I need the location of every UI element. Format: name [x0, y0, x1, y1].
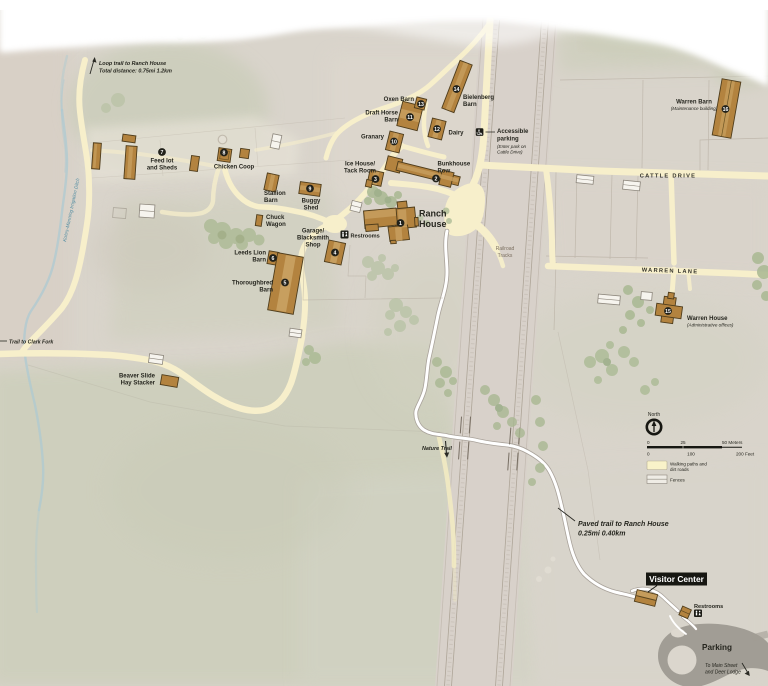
svg-text:Trail to Clark Fork: Trail to Clark Fork — [9, 340, 54, 346]
svg-text:Chicken Coop: Chicken Coop — [214, 165, 255, 171]
svg-text:Granary: Granary — [361, 135, 385, 141]
svg-text:(Enter park on: (Enter park on — [497, 144, 527, 149]
svg-text:and Sheds: and Sheds — [147, 166, 178, 172]
svg-text:(Maintenance building): (Maintenance building) — [671, 106, 718, 111]
svg-text:Row: Row — [438, 169, 451, 175]
svg-text:Nature Trail: Nature Trail — [422, 446, 452, 452]
svg-text:4: 4 — [334, 251, 337, 257]
svg-text:Wagon: Wagon — [266, 222, 286, 228]
svg-text:25: 25 — [680, 440, 686, 445]
svg-text:Barn: Barn — [259, 288, 273, 294]
svg-text:5: 5 — [284, 281, 287, 287]
svg-text:1: 1 — [399, 221, 402, 227]
svg-text:Tack Room: Tack Room — [344, 169, 376, 175]
svg-text:Chuck: Chuck — [266, 215, 285, 221]
svg-text:6: 6 — [272, 256, 275, 262]
svg-text:Ice House/: Ice House/ — [345, 162, 375, 168]
svg-text:Feed lot: Feed lot — [150, 159, 173, 165]
svg-text:dirt roads: dirt roads — [670, 467, 690, 472]
svg-text:Shed: Shed — [304, 206, 319, 212]
svg-text:50 Meters: 50 Meters — [722, 440, 743, 445]
svg-text:Warren House: Warren House — [687, 316, 728, 322]
svg-text:Parking: Parking — [702, 643, 732, 652]
svg-text:Paved trail to Ranch House: Paved trail to Ranch House — [578, 521, 669, 528]
svg-text:12: 12 — [434, 127, 440, 133]
svg-text:Leeds Lion: Leeds Lion — [234, 251, 266, 257]
svg-text:7: 7 — [161, 150, 164, 156]
svg-text:Garage/: Garage/ — [302, 229, 325, 235]
svg-text:Warren Barn: Warren Barn — [676, 100, 712, 106]
svg-text:16: 16 — [723, 107, 729, 113]
svg-text:200 Feet: 200 Feet — [736, 452, 755, 457]
svg-text:Accessible: Accessible — [497, 129, 529, 135]
svg-text:Railroad: Railroad — [496, 246, 515, 252]
svg-text:0.25mi 0.40km: 0.25mi 0.40km — [578, 531, 625, 538]
svg-text:(Administrative offices): (Administrative offices) — [687, 323, 734, 328]
svg-text:and Deer Lodge: and Deer Lodge — [705, 670, 741, 676]
svg-text:2: 2 — [435, 177, 438, 183]
svg-text:Stallion: Stallion — [264, 191, 286, 197]
svg-text:11: 11 — [407, 115, 413, 121]
svg-text:14: 14 — [454, 87, 460, 93]
svg-text:Total distance: 0.75mi 1.2km: Total distance: 0.75mi 1.2km — [99, 69, 172, 75]
svg-text:Barn: Barn — [252, 258, 266, 264]
svg-text:Visitor Center: Visitor Center — [649, 574, 705, 584]
svg-text:Shop: Shop — [306, 243, 321, 249]
svg-text:Blacksmith: Blacksmith — [297, 236, 329, 242]
svg-text:Hay Stacker: Hay Stacker — [121, 381, 156, 387]
svg-text:Barn: Barn — [384, 118, 398, 124]
svg-text:Barn: Barn — [264, 198, 278, 204]
svg-text:15: 15 — [665, 309, 671, 315]
svg-text:Walking paths and: Walking paths and — [670, 462, 707, 467]
svg-text:10: 10 — [391, 140, 397, 146]
svg-text:Bunkhouse: Bunkhouse — [438, 162, 471, 168]
svg-text:Cattle Drive): Cattle Drive) — [497, 150, 523, 155]
svg-text:Fences: Fences — [670, 478, 686, 483]
svg-text:Dairy: Dairy — [449, 131, 465, 137]
svg-text:3: 3 — [374, 177, 377, 183]
svg-text:Restrooms: Restrooms — [351, 234, 380, 240]
svg-text:Restrooms: Restrooms — [694, 604, 723, 610]
svg-text:100: 100 — [687, 452, 695, 457]
svg-text:8: 8 — [223, 151, 226, 157]
svg-text:13: 13 — [418, 102, 424, 108]
svg-text:0: 0 — [647, 452, 650, 457]
svg-text:Ranch: Ranch — [419, 209, 447, 219]
svg-text:Beaver Slide: Beaver Slide — [119, 374, 156, 380]
svg-text:Loop trail to Ranch House: Loop trail to Ranch House — [99, 61, 166, 67]
svg-text:0: 0 — [647, 440, 650, 445]
svg-text:9: 9 — [309, 187, 312, 193]
svg-text:parking: parking — [497, 137, 519, 143]
svg-text:CATTLE DRIVE: CATTLE DRIVE — [640, 174, 697, 180]
svg-text:Thoroughbred: Thoroughbred — [232, 281, 273, 287]
svg-text:Bielenberg: Bielenberg — [463, 95, 494, 101]
svg-text:Tracks: Tracks — [498, 253, 513, 259]
svg-text:Oxen Barn: Oxen Barn — [384, 97, 415, 103]
svg-text:To Main Street: To Main Street — [705, 663, 738, 669]
svg-text:Buggy: Buggy — [302, 199, 321, 205]
svg-text:House: House — [419, 219, 447, 229]
svg-text:Draft Horse: Draft Horse — [365, 111, 398, 117]
svg-text:Barn: Barn — [463, 102, 477, 108]
svg-text:North: North — [648, 412, 660, 418]
